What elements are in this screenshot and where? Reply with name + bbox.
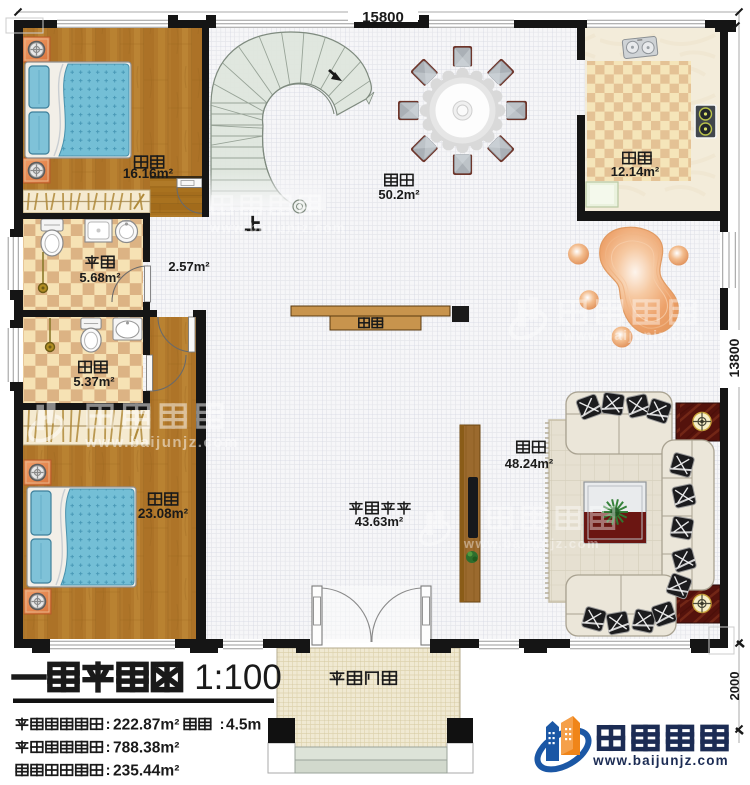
svg-text:www.baijunjz.com: www.baijunjz.com — [84, 434, 238, 451]
svg-text::: : — [220, 717, 225, 733]
svg-text:12.14m²: 12.14m² — [611, 164, 660, 179]
svg-text:15800: 15800 — [362, 9, 404, 26]
svg-text:www.baijunjz.com: www.baijunjz.com — [209, 220, 346, 235]
svg-text:1:100: 1:100 — [194, 658, 282, 697]
svg-text:222.87m²: 222.87m² — [113, 717, 179, 734]
svg-text::: : — [106, 763, 111, 779]
svg-text:2000: 2000 — [727, 672, 742, 701]
svg-text:23.08m²: 23.08m² — [138, 506, 189, 521]
svg-text:788.38m²: 788.38m² — [113, 740, 179, 757]
svg-text:www.baijunjz.com: www.baijunjz.com — [563, 328, 705, 343]
svg-text:www.baijunjz.com: www.baijunjz.com — [592, 753, 729, 768]
svg-text:235.44m²: 235.44m² — [113, 763, 179, 780]
svg-text:www.baijunjz.com: www.baijunjz.com — [463, 536, 600, 551]
svg-text:43.63m²: 43.63m² — [355, 514, 404, 529]
svg-text:16.16m²: 16.16m² — [123, 166, 174, 181]
svg-text:48.24m²: 48.24m² — [505, 456, 554, 471]
svg-text::: : — [106, 717, 111, 733]
svg-text:4.5m: 4.5m — [226, 717, 261, 734]
svg-text::: : — [106, 740, 111, 756]
svg-text:5.37m²: 5.37m² — [73, 374, 115, 389]
svg-text:2.57m²: 2.57m² — [168, 259, 210, 274]
svg-text:50.2m²: 50.2m² — [378, 187, 420, 202]
svg-text:5.68m²: 5.68m² — [79, 270, 121, 285]
svg-text:13800: 13800 — [726, 338, 742, 377]
